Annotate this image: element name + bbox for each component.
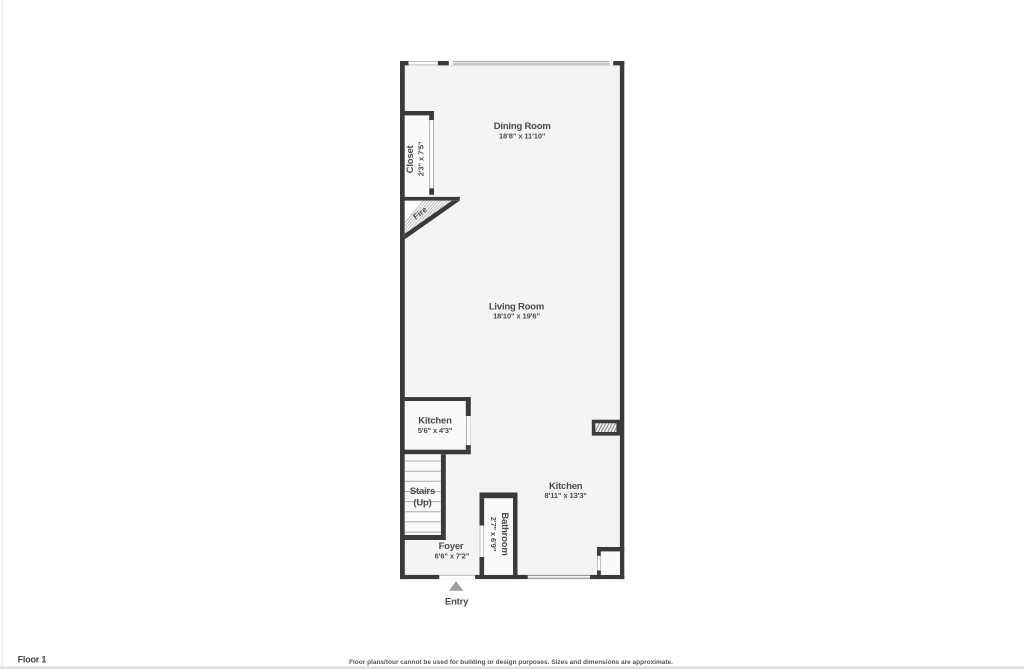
svg-text:Closet: Closet [405,144,416,173]
svg-text:Stairs: Stairs [410,486,435,497]
svg-text:2'7" x 6'9": 2'7" x 6'9" [489,517,498,552]
svg-text:Bathroom: Bathroom [499,512,510,555]
svg-text:2'3" x 7'5": 2'3" x 7'5" [417,141,426,176]
svg-text:Floor 1: Floor 1 [18,655,47,665]
svg-text:(Up): (Up) [413,497,431,508]
svg-text:6'6" x 7'2": 6'6" x 7'2" [435,552,470,561]
svg-text:Floor plans/tour cannot be use: Floor plans/tour cannot be used for buil… [349,659,673,666]
svg-text:Foyer: Foyer [439,541,464,552]
svg-text:Kitchen: Kitchen [418,415,452,426]
svg-text:5'6" x 4'3": 5'6" x 4'3" [418,426,453,435]
svg-text:Dining Room: Dining Room [494,121,551,132]
svg-text:18'8" x 11'10": 18'8" x 11'10" [499,132,546,141]
svg-text:Entry: Entry [445,597,469,608]
svg-text:8'11" x 13'3": 8'11" x 13'3" [545,491,588,500]
svg-text:18'10" x 19'6": 18'10" x 19'6" [493,311,540,320]
